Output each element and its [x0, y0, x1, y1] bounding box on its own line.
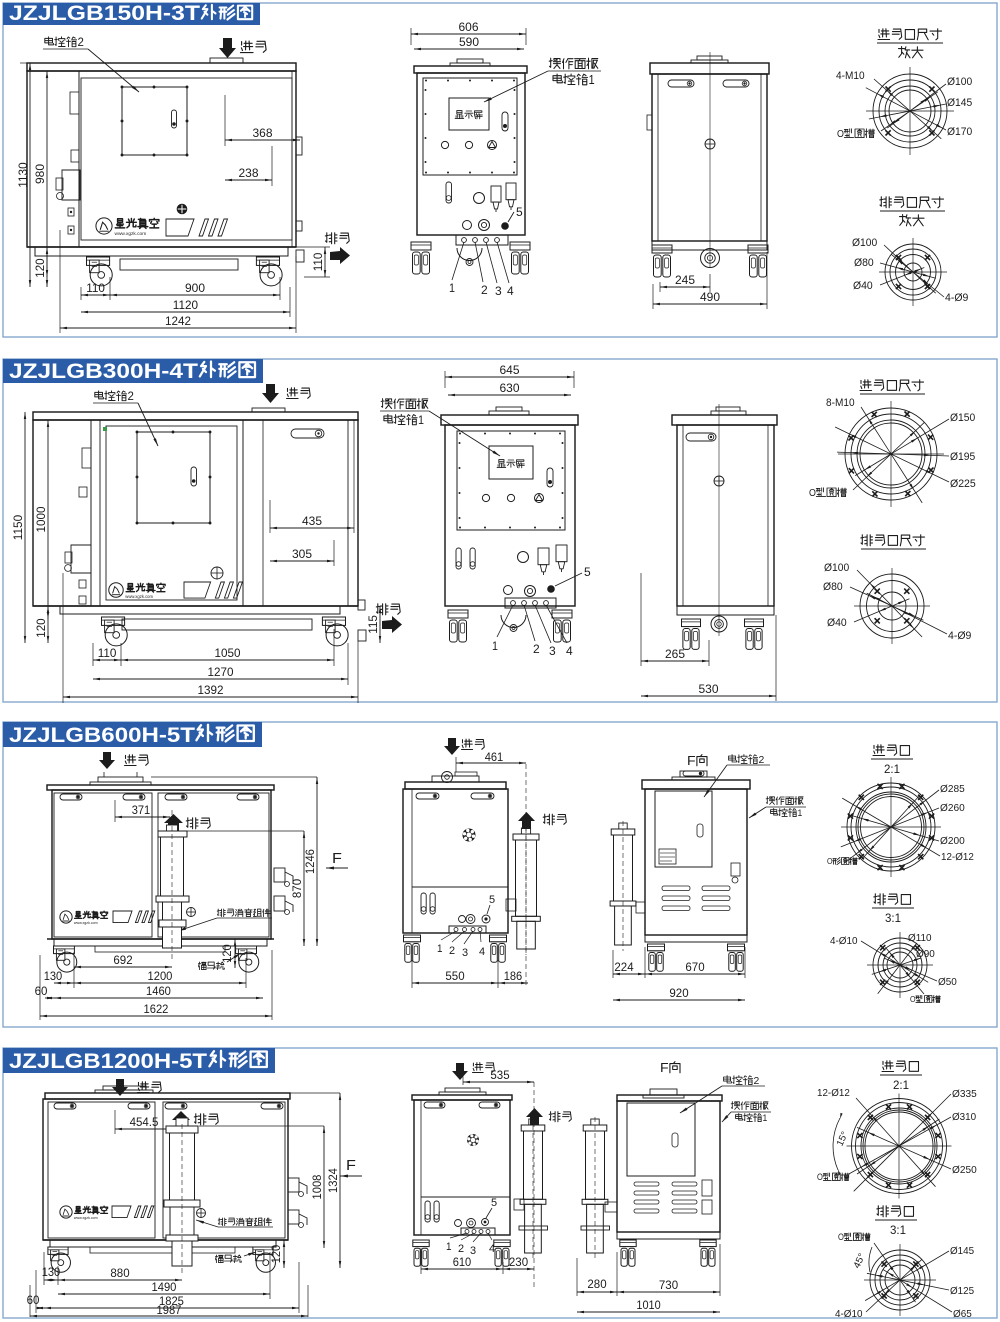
svg-text:O: O: [817, 1172, 823, 1182]
svg-text:530: 530: [699, 682, 719, 696]
svg-text:Ø145: Ø145: [947, 97, 972, 109]
svg-text:5: 5: [516, 205, 523, 219]
svg-text:120: 120: [222, 944, 234, 963]
svg-text:4-Ø9: 4-Ø9: [948, 630, 971, 642]
svg-text:4: 4: [507, 284, 514, 298]
svg-text:645: 645: [500, 363, 520, 377]
svg-text:Ø310: Ø310: [952, 1111, 976, 1123]
svg-text:630: 630: [500, 381, 520, 395]
svg-text:Ø65: Ø65: [953, 1308, 972, 1320]
svg-text:1622: 1622: [144, 1004, 169, 1016]
svg-text:610: 610: [453, 1257, 472, 1269]
svg-text:2: 2: [481, 283, 488, 297]
svg-text:461: 461: [485, 752, 504, 764]
svg-text:224: 224: [614, 962, 634, 974]
svg-text:Ø100: Ø100: [852, 237, 877, 249]
svg-text:280: 280: [587, 1279, 606, 1291]
svg-text:12-Ø12: 12-Ø12: [817, 1087, 850, 1099]
svg-text:F: F: [687, 753, 696, 768]
svg-text:O: O: [827, 856, 833, 866]
svg-text:Ø80: Ø80: [854, 257, 874, 269]
svg-text:O: O: [838, 1232, 844, 1242]
svg-text:4-Ø9: 4-Ø9: [945, 292, 968, 304]
svg-text:920: 920: [669, 988, 688, 1000]
svg-text:305: 305: [292, 547, 312, 561]
svg-text:1324: 1324: [328, 1168, 340, 1193]
svg-text:535: 535: [490, 1070, 509, 1082]
svg-text:265: 265: [665, 647, 685, 661]
svg-text:245: 245: [675, 273, 695, 287]
svg-text:Ø170: Ø170: [947, 126, 972, 138]
svg-text:730: 730: [659, 1280, 678, 1292]
svg-text:186: 186: [504, 971, 523, 983]
svg-text:3: 3: [462, 947, 468, 959]
svg-text:870: 870: [292, 879, 304, 898]
svg-text:4: 4: [566, 644, 573, 658]
svg-text:2: 2: [759, 754, 765, 766]
svg-text:1270: 1270: [208, 665, 234, 679]
svg-text:590: 590: [459, 35, 479, 49]
svg-text:1150: 1150: [11, 515, 25, 541]
svg-text:3: 3: [549, 644, 556, 658]
svg-text:1: 1: [589, 73, 595, 87]
svg-text:115: 115: [366, 615, 380, 634]
svg-text:670: 670: [685, 962, 704, 974]
svg-text:1246: 1246: [305, 849, 317, 874]
svg-text:1130: 1130: [16, 162, 30, 188]
svg-text:Ø40: Ø40: [827, 617, 847, 629]
svg-text:Ø50: Ø50: [938, 976, 957, 988]
svg-text:Ø285: Ø285: [940, 783, 965, 795]
svg-text:120: 120: [271, 1245, 283, 1264]
svg-text:Ø335: Ø335: [952, 1088, 977, 1100]
svg-text:110: 110: [311, 252, 325, 271]
svg-text:JZJLGB150H-3T: JZJLGB150H-3T: [9, 2, 200, 25]
svg-text:2:1: 2:1: [893, 1078, 909, 1092]
svg-text:3:1: 3:1: [890, 1223, 906, 1237]
svg-text:1: 1: [449, 281, 455, 295]
svg-text:60: 60: [27, 1295, 40, 1307]
svg-text:1987: 1987: [157, 1305, 182, 1317]
svg-text:www.xgzk.com: www.xgzk.com: [74, 921, 98, 925]
svg-text:Ø110: Ø110: [908, 932, 932, 944]
svg-text:F: F: [660, 1060, 669, 1075]
svg-text:2: 2: [128, 391, 134, 403]
svg-text:2: 2: [533, 642, 540, 656]
svg-text:Ø150: Ø150: [950, 412, 975, 424]
svg-text:O: O: [837, 128, 844, 140]
svg-text:3: 3: [470, 1245, 476, 1257]
svg-text:2:1: 2:1: [884, 762, 900, 776]
svg-text:2: 2: [78, 37, 84, 49]
svg-text:1: 1: [418, 413, 424, 427]
svg-text:www.xgzk.com: www.xgzk.com: [125, 594, 153, 599]
svg-text:Ø200: Ø200: [940, 835, 965, 847]
svg-text:4-Ø10: 4-Ø10: [830, 935, 858, 947]
svg-text:880: 880: [110, 1268, 129, 1280]
svg-text:3: 3: [495, 284, 502, 298]
svg-text:Ø195: Ø195: [950, 451, 975, 463]
svg-text:Ø260: Ø260: [940, 802, 965, 814]
svg-text:230: 230: [509, 1257, 528, 1269]
svg-text:2: 2: [449, 945, 455, 957]
svg-text:130: 130: [42, 1267, 61, 1279]
svg-text:900: 900: [185, 281, 205, 295]
svg-text:454.5: 454.5: [130, 1117, 159, 1129]
svg-text:606: 606: [459, 20, 479, 34]
svg-text:Ø145: Ø145: [950, 1245, 974, 1257]
svg-text:692: 692: [113, 955, 132, 967]
svg-text:8-M10: 8-M10: [826, 397, 855, 409]
svg-text:JZJLGB300H-4T: JZJLGB300H-4T: [9, 359, 198, 383]
svg-text:1000: 1000: [34, 506, 48, 532]
svg-text:368: 368: [253, 126, 273, 140]
svg-text:120: 120: [33, 258, 47, 278]
svg-text:435: 435: [302, 514, 322, 528]
svg-text:120: 120: [34, 618, 48, 638]
svg-text:Ø125: Ø125: [950, 1285, 974, 1297]
svg-text:1: 1: [798, 808, 803, 819]
svg-text:1008: 1008: [312, 1175, 324, 1200]
svg-text:F: F: [346, 1157, 356, 1174]
svg-text:5: 5: [584, 565, 591, 579]
svg-text:110: 110: [86, 281, 105, 295]
svg-text:O: O: [910, 994, 916, 1004]
svg-text:5: 5: [491, 1197, 497, 1209]
svg-text:110: 110: [98, 646, 117, 660]
svg-text:12-Ø12: 12-Ø12: [941, 851, 974, 863]
svg-text:Ø250: Ø250: [952, 1164, 977, 1176]
svg-text:550: 550: [445, 971, 464, 983]
svg-text:3:1: 3:1: [885, 911, 901, 925]
svg-text:www.xgzk.com: www.xgzk.com: [115, 231, 147, 237]
svg-text:1: 1: [446, 1241, 452, 1253]
svg-text:JZJLGB1200H-5T: JZJLGB1200H-5T: [9, 1049, 207, 1073]
svg-text:www.xgzk.com: www.xgzk.com: [74, 1216, 98, 1220]
svg-text:4: 4: [479, 946, 485, 958]
svg-text:1242: 1242: [165, 314, 191, 328]
svg-text:1200: 1200: [148, 971, 173, 983]
svg-text:1050: 1050: [215, 646, 241, 660]
svg-text:371: 371: [132, 805, 151, 817]
svg-text:Ø100: Ø100: [947, 76, 972, 88]
svg-text:2: 2: [754, 1075, 760, 1087]
svg-text:1: 1: [437, 943, 443, 955]
svg-text:5: 5: [489, 894, 495, 906]
svg-text:Ø40: Ø40: [853, 280, 873, 292]
svg-text:1460: 1460: [146, 986, 171, 998]
svg-text:60: 60: [35, 986, 48, 998]
svg-text:238: 238: [239, 166, 259, 180]
svg-text:F: F: [332, 850, 342, 867]
svg-text:490: 490: [700, 290, 720, 304]
svg-text:JZJLGB600H-5T: JZJLGB600H-5T: [9, 723, 195, 747]
svg-text:Ø90: Ø90: [916, 948, 935, 960]
svg-text:1490: 1490: [152, 1282, 177, 1294]
svg-text:Ø225: Ø225: [950, 478, 976, 490]
svg-text:O: O: [809, 487, 816, 499]
svg-text:Ø100: Ø100: [824, 562, 849, 574]
svg-text:980: 980: [33, 164, 47, 184]
svg-text:1: 1: [763, 1113, 768, 1124]
svg-text:130: 130: [44, 971, 63, 983]
svg-text:1010: 1010: [636, 1300, 660, 1312]
svg-text:1: 1: [492, 639, 498, 653]
svg-text:2: 2: [458, 1243, 464, 1255]
svg-text:1392: 1392: [198, 683, 224, 697]
svg-text:4-Ø10: 4-Ø10: [835, 1308, 863, 1320]
svg-text:4-M10: 4-M10: [836, 70, 865, 82]
svg-text:Ø80: Ø80: [823, 581, 843, 593]
svg-text:1120: 1120: [173, 298, 199, 312]
